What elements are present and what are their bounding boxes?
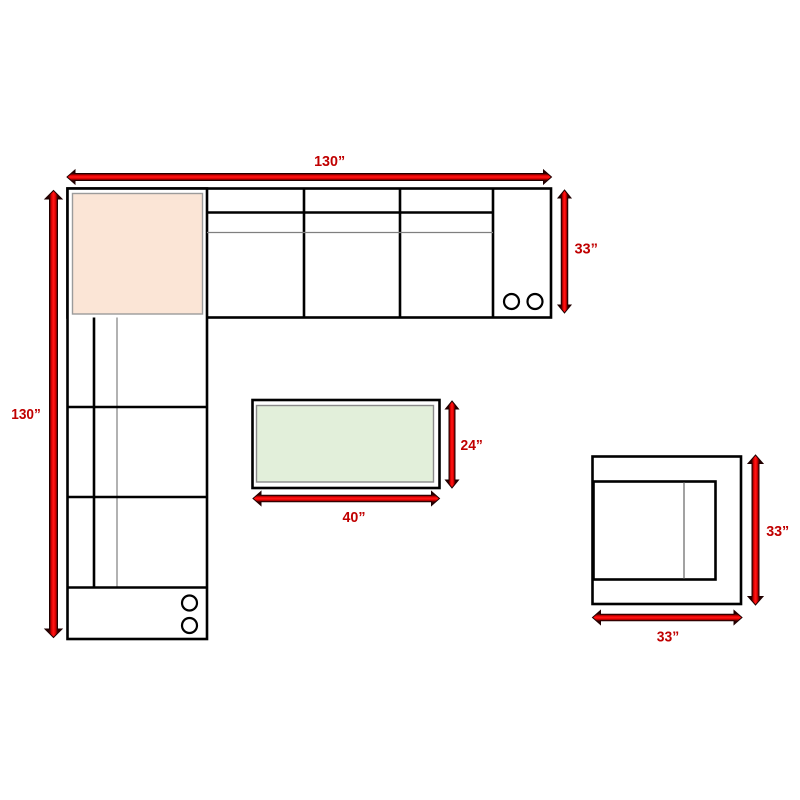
svg-text:33”: 33” bbox=[657, 629, 679, 646]
svg-text:40”: 40” bbox=[343, 509, 366, 526]
svg-text:130”: 130” bbox=[314, 153, 345, 170]
svg-text:130”: 130” bbox=[11, 406, 41, 423]
svg-text:33”: 33” bbox=[766, 523, 789, 540]
svg-text:33”: 33” bbox=[574, 241, 598, 258]
svg-text:24”: 24” bbox=[461, 437, 483, 454]
